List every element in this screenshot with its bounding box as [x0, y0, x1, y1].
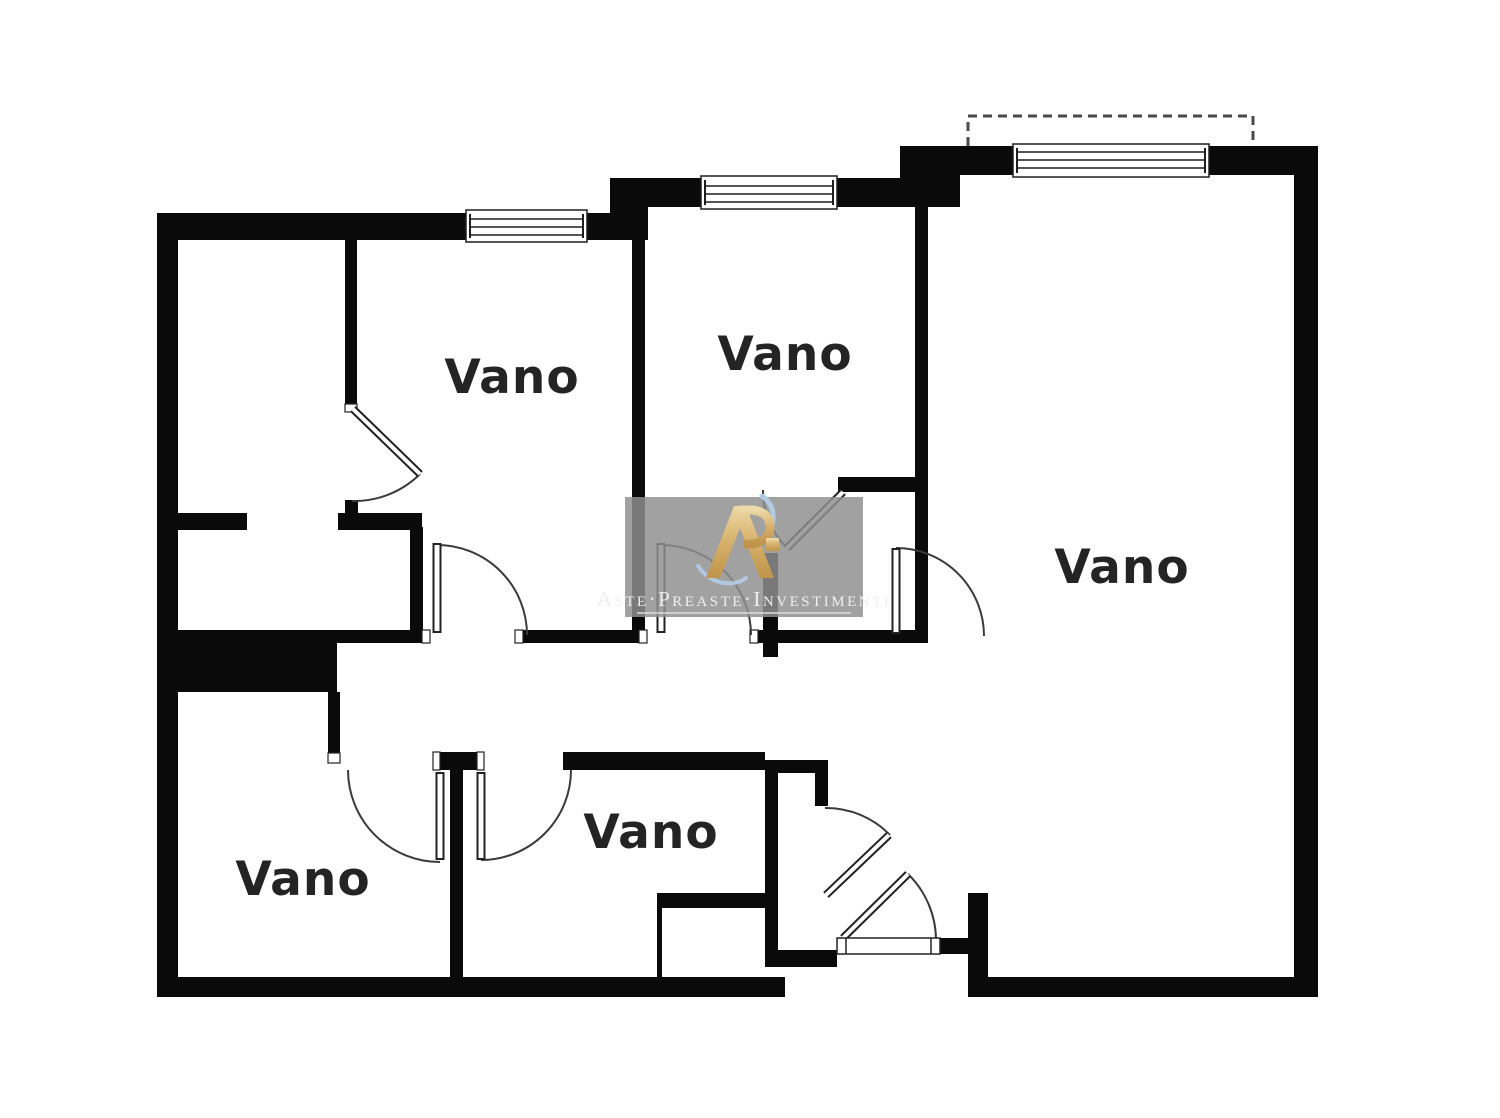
floorplan-drawing: Vano Vano Vano Vano Vano Aste·Preaste·In…	[0, 0, 1500, 1118]
wall-entry-west	[765, 760, 778, 957]
floorplan-page: Vano Vano Vano Vano Vano Aste·Preaste·In…	[0, 0, 1500, 1118]
jamb	[515, 630, 523, 643]
wall-entry-north	[778, 760, 828, 773]
wall-closet-north	[657, 893, 765, 908]
room-label-top-center: Vano	[444, 350, 579, 405]
entry-threshold	[837, 938, 940, 954]
wall-vestibule-north-b	[338, 513, 422, 530]
wall-closet-west-thin	[657, 908, 662, 977]
jamb	[639, 630, 647, 643]
wall-vestibule-east	[410, 527, 423, 643]
wall-entry-stub	[815, 773, 828, 806]
logo-monogram-dot	[766, 538, 779, 551]
wall-bottommiddle-north	[563, 752, 765, 770]
wall-thick-band	[157, 630, 337, 692]
wall-vestibule-north-a	[157, 513, 247, 530]
wall-threshold-right	[940, 938, 970, 954]
room-label-top-middle: Vano	[717, 327, 852, 382]
wall-topleft-room-east	[345, 240, 357, 405]
room-label-bottom-left: Vano	[235, 852, 370, 907]
wall-hall-south-a	[337, 630, 430, 643]
room-label-bottom-middle: Vano	[583, 805, 718, 860]
wall-divider-bottom-rooms	[450, 770, 463, 977]
jamb	[328, 753, 340, 763]
wall-entry-pillar	[968, 893, 988, 997]
threshold-sill	[837, 938, 940, 954]
jamb	[433, 752, 440, 770]
window-bigroom	[1013, 144, 1209, 177]
window-room1	[466, 210, 587, 242]
wall-outer-left	[157, 213, 178, 997]
wall-hall-south-b	[523, 630, 647, 643]
window-room2	[701, 176, 837, 209]
window-frame	[701, 176, 837, 209]
wall-bigroom-west	[915, 175, 928, 643]
watermark-brand-text: Aste·Preaste·Investimenti	[597, 587, 891, 611]
wall-bottomleft-east-upper	[328, 692, 340, 763]
jamb	[477, 752, 484, 770]
watermark: Aste·Preaste·Investimenti	[597, 496, 891, 617]
wall-between-doors	[440, 752, 477, 770]
wall-nook-north	[838, 477, 917, 492]
room-label-right-large: Vano	[1054, 540, 1189, 595]
wall-outer-bottom-left	[157, 977, 785, 997]
wall-outer-bottom-right	[986, 977, 1318, 997]
wall-outer-right	[1294, 146, 1318, 997]
window-frame	[466, 210, 587, 242]
jamb	[422, 630, 430, 643]
